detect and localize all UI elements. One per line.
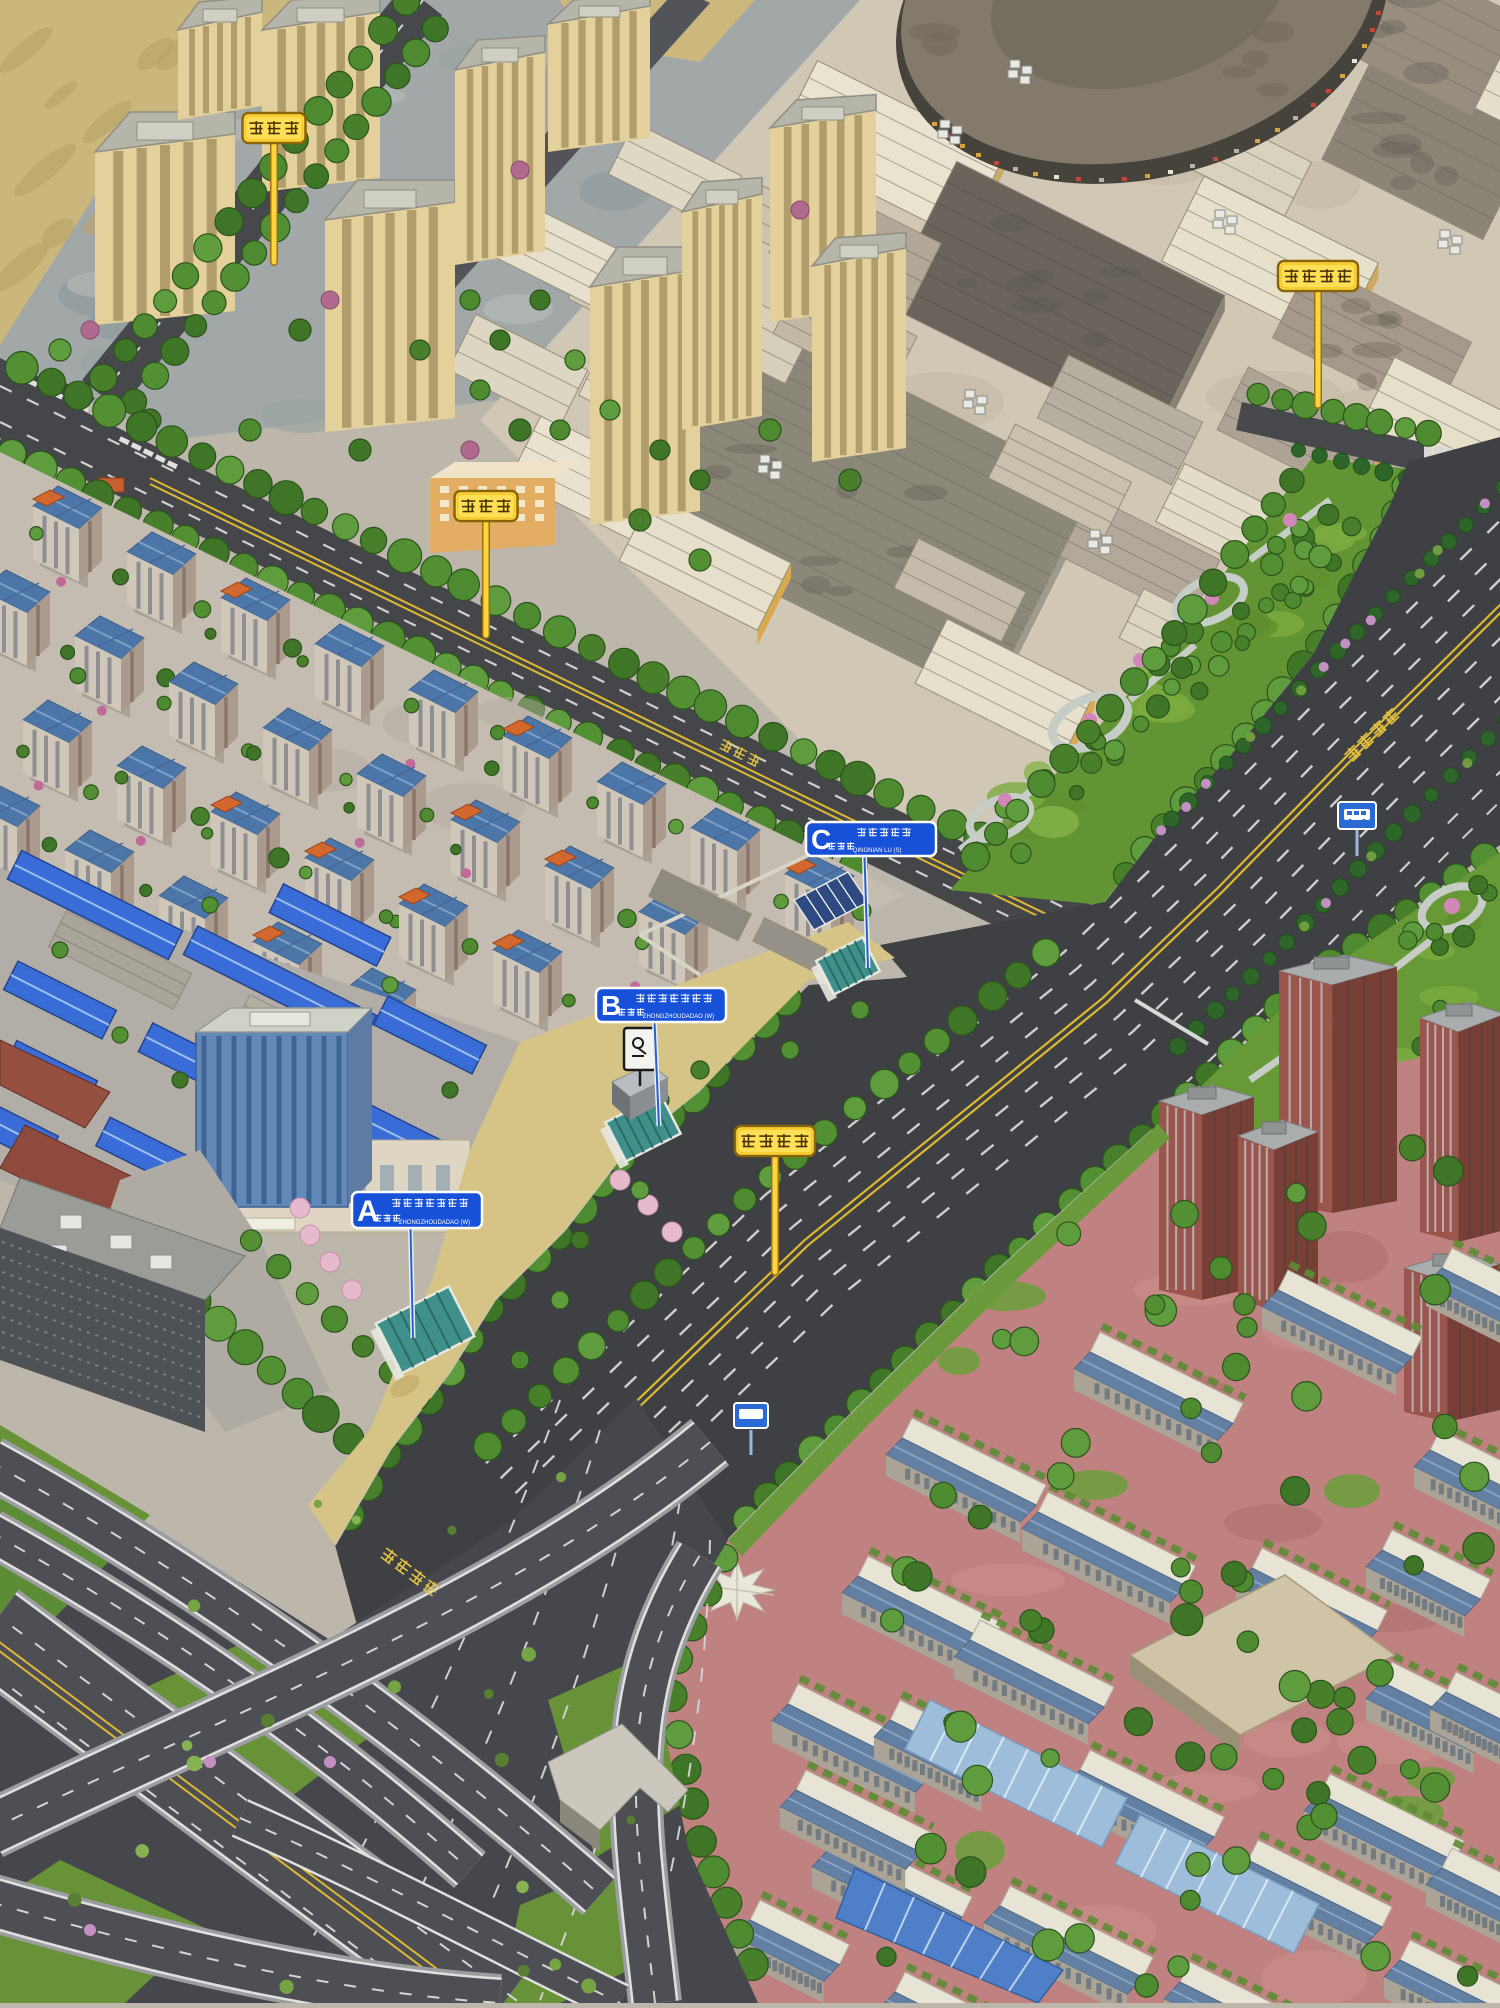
svg-text:A: A — [357, 1195, 379, 1228]
svg-text:B: B — [601, 990, 621, 1021]
svg-text:C: C — [811, 824, 831, 855]
svg-text:QINGNIAN LU (S): QINGNIAN LU (S) — [853, 848, 902, 854]
svg-text:ZHONGZHOUDADAO (W): ZHONGZHOUDADAO (W) — [399, 1220, 470, 1226]
svg-text:ZHONGZHOUDADAO (W): ZHONGZHOUDADAO (W) — [643, 1014, 714, 1020]
